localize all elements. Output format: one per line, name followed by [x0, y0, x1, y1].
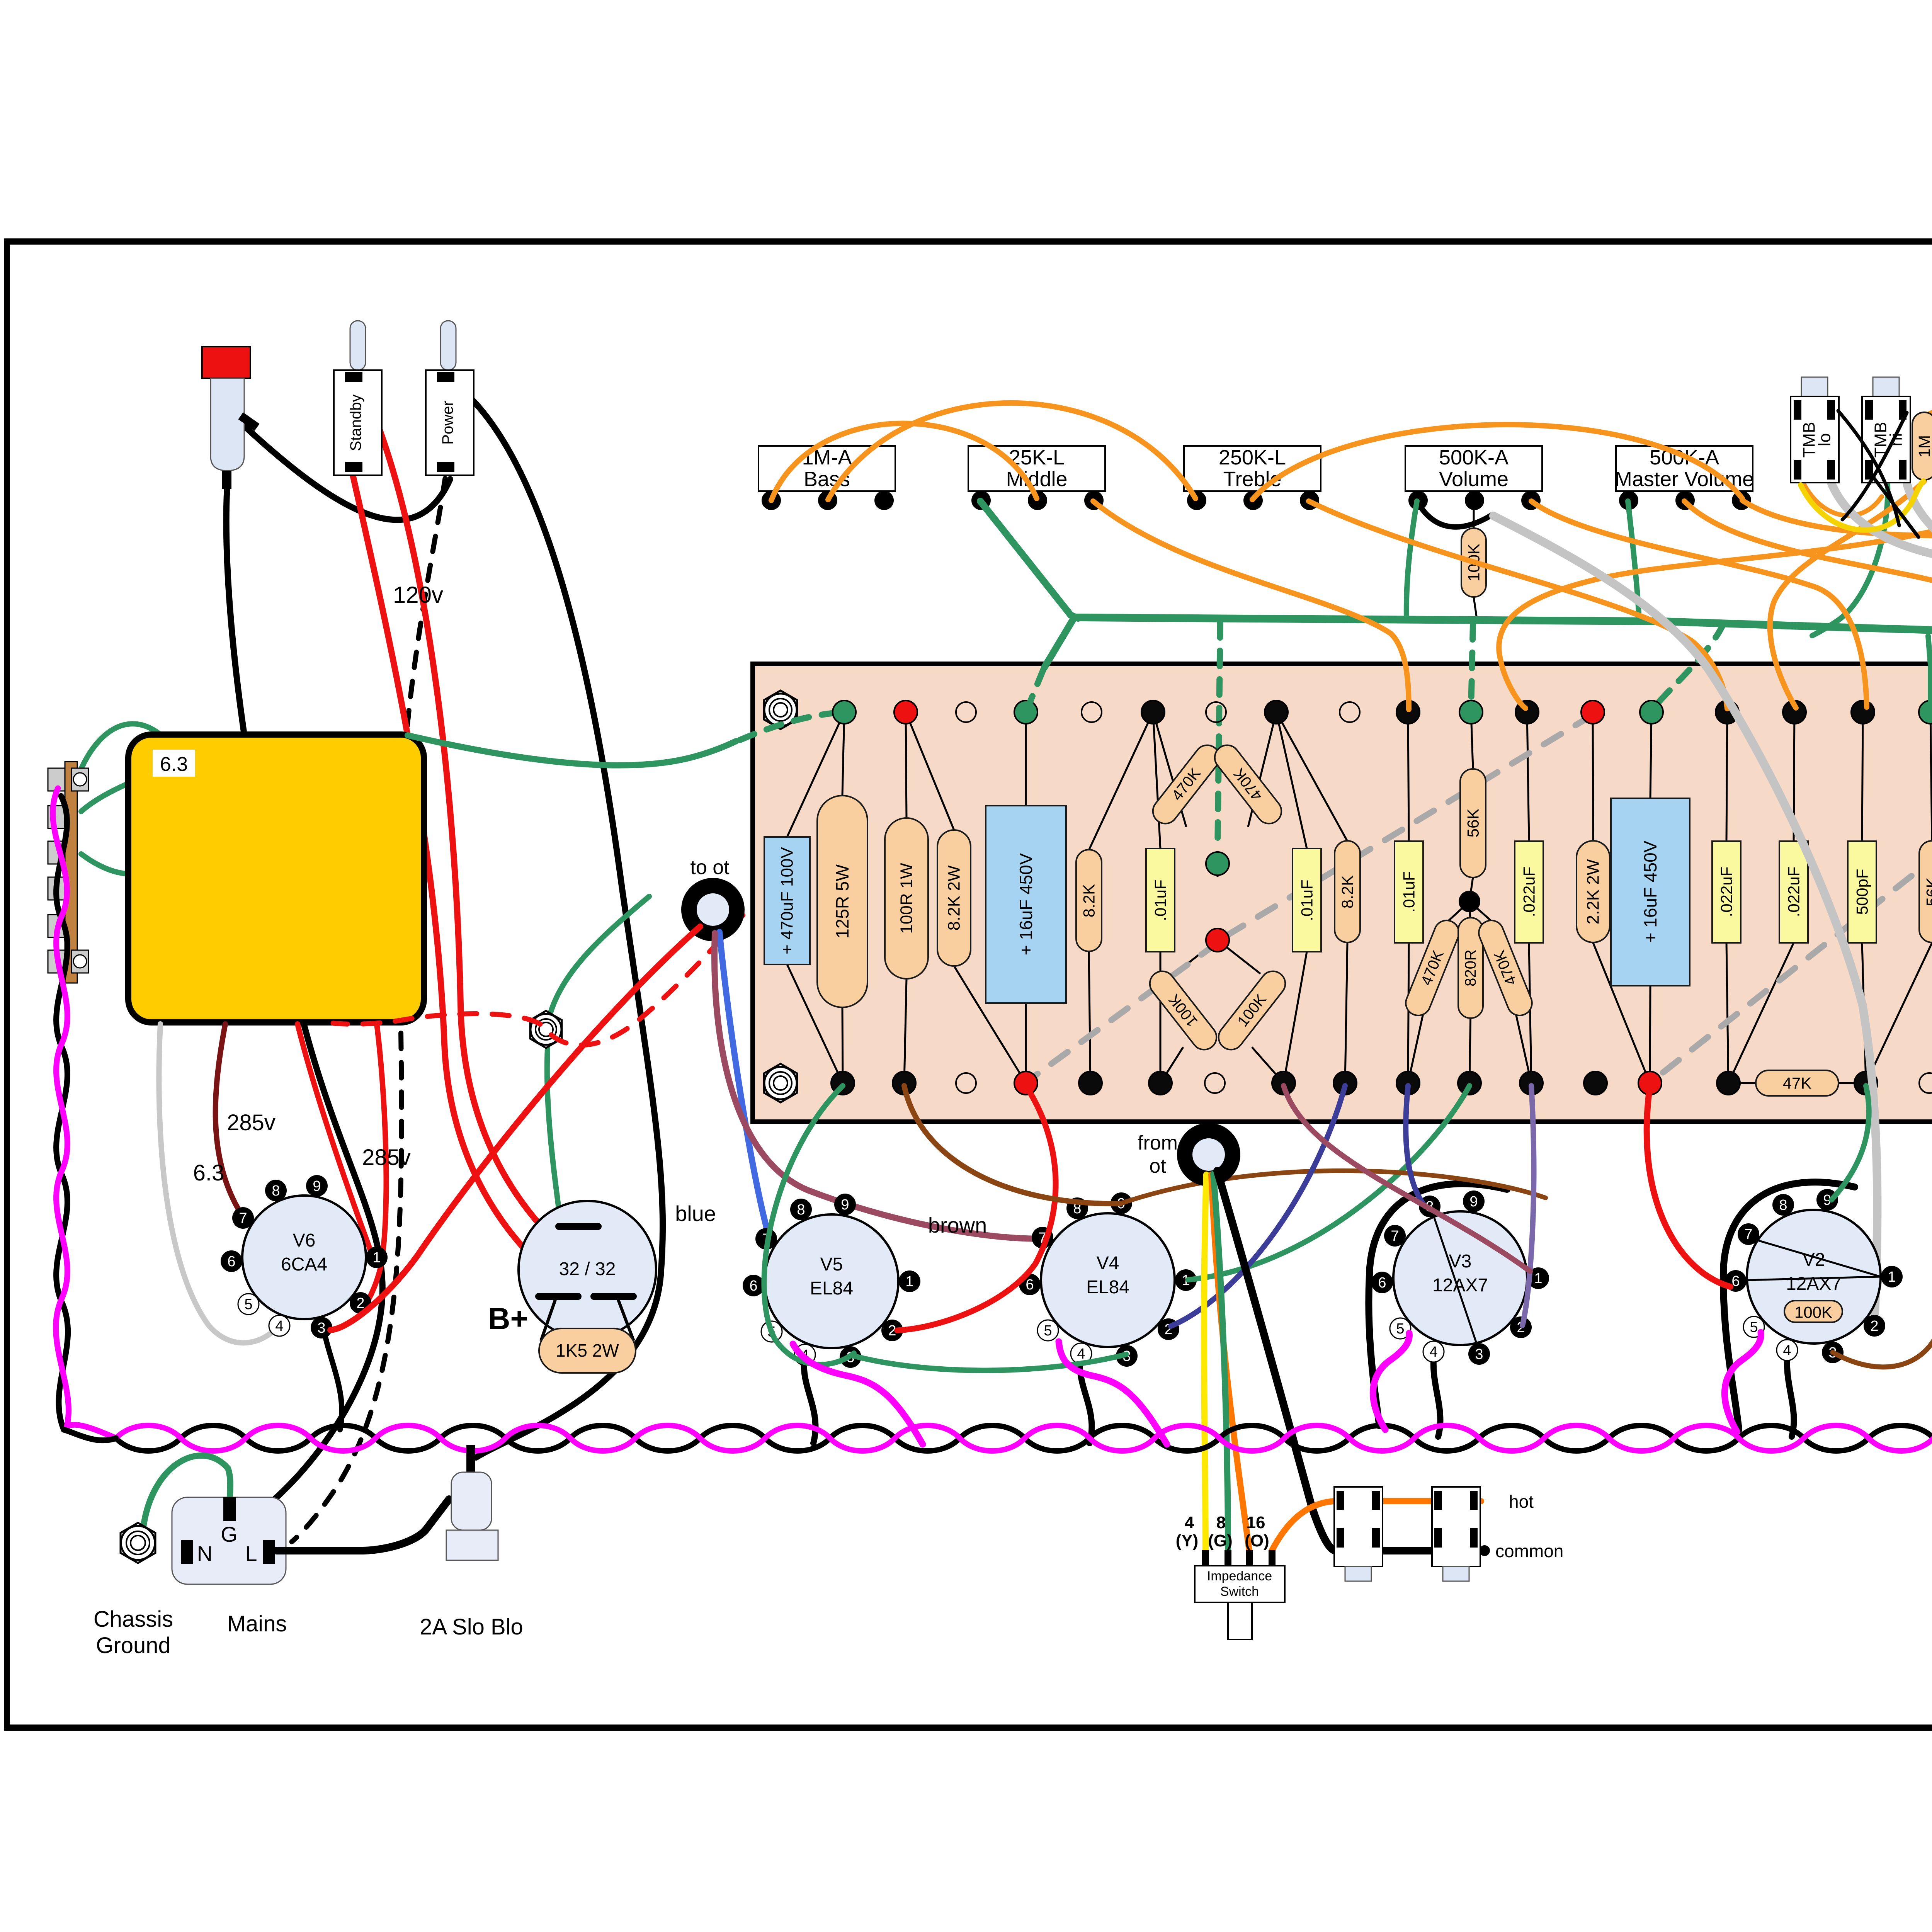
- svg-text:7: 7: [1744, 1226, 1752, 1243]
- svg-text:V4: V4: [1097, 1253, 1119, 1274]
- svg-text:47K: 47K: [1783, 1074, 1812, 1092]
- svg-text:56K: 56K: [1923, 878, 1932, 906]
- svg-text:V2: V2: [1803, 1250, 1825, 1270]
- svg-text:125R 5W: 125R 5W: [832, 864, 852, 939]
- svg-text:Impedance: Impedance: [1207, 1569, 1272, 1583]
- svg-text:Ground: Ground: [96, 1633, 170, 1658]
- svg-text:8.2K: 8.2K: [1338, 875, 1357, 908]
- svg-text:+ 470uF 100V: + 470uF 100V: [778, 847, 797, 954]
- svg-text:EL84: EL84: [810, 1278, 853, 1299]
- svg-text:hot: hot: [1509, 1492, 1534, 1512]
- svg-text:9: 9: [841, 1197, 849, 1213]
- svg-text:Mains: Mains: [227, 1611, 287, 1636]
- svg-text:8: 8: [1779, 1197, 1787, 1213]
- svg-text:blue: blue: [675, 1201, 716, 1226]
- svg-text:3: 3: [1475, 1346, 1483, 1362]
- svg-text:56K: 56K: [1464, 809, 1482, 838]
- svg-text:V3: V3: [1449, 1251, 1472, 1272]
- svg-text:100K: 100K: [1794, 1303, 1832, 1321]
- svg-text:8.2K: 8.2K: [1080, 884, 1098, 917]
- svg-text:820R: 820R: [1462, 949, 1479, 986]
- svg-text:EL84: EL84: [1086, 1277, 1129, 1298]
- svg-text:L: L: [245, 1541, 257, 1566]
- svg-text:Power: Power: [439, 401, 456, 444]
- svg-text:6.3: 6.3: [160, 753, 188, 776]
- svg-text:1K5 2W: 1K5 2W: [556, 1340, 619, 1361]
- svg-text:8: 8: [797, 1202, 805, 1218]
- svg-text:N: N: [197, 1541, 213, 1566]
- svg-text:(Y): (Y): [1176, 1531, 1199, 1550]
- svg-text:285v: 285v: [362, 1145, 411, 1170]
- svg-text:6: 6: [749, 1278, 757, 1294]
- svg-text:12AX7: 12AX7: [1786, 1274, 1842, 1294]
- svg-text:.01uF: .01uF: [1298, 879, 1316, 921]
- svg-text:8: 8: [1216, 1513, 1226, 1532]
- svg-text:common: common: [1495, 1541, 1563, 1561]
- svg-text:3: 3: [317, 1320, 325, 1336]
- svg-text:16: 16: [1247, 1513, 1265, 1532]
- svg-text:1: 1: [905, 1274, 913, 1290]
- svg-text:.01uF: .01uF: [1151, 879, 1170, 921]
- svg-text:lo: lo: [1815, 433, 1834, 446]
- svg-text:500K-A: 500K-A: [1439, 446, 1509, 469]
- svg-text:G: G: [221, 1522, 238, 1546]
- svg-text:4: 4: [275, 1318, 283, 1334]
- svg-text:6: 6: [227, 1253, 235, 1270]
- svg-text:2: 2: [1870, 1318, 1878, 1334]
- svg-text:+ 16uF 450V: + 16uF 450V: [1640, 840, 1660, 943]
- svg-text:7: 7: [1391, 1228, 1399, 1244]
- svg-text:6: 6: [1378, 1275, 1386, 1291]
- svg-text:4: 4: [1077, 1346, 1085, 1362]
- svg-text:.01uF: .01uF: [1400, 871, 1418, 912]
- svg-text:1: 1: [1534, 1270, 1542, 1287]
- svg-text:ot: ot: [1149, 1155, 1166, 1177]
- svg-text:V5: V5: [820, 1254, 843, 1275]
- svg-text:from: from: [1138, 1132, 1178, 1154]
- svg-text:(O): (O): [1245, 1531, 1269, 1550]
- svg-text:2.2K 2W: 2.2K 2W: [1584, 859, 1603, 924]
- svg-text:6: 6: [1026, 1277, 1034, 1293]
- svg-text:Standby: Standby: [347, 395, 364, 451]
- svg-text:100R 1W: 100R 1W: [897, 863, 916, 934]
- svg-text:250K-L: 250K-L: [1219, 446, 1286, 469]
- svg-text:+ 16uF 450V: + 16uF 450V: [1016, 853, 1036, 955]
- svg-text:.022uF: .022uF: [1785, 867, 1803, 917]
- svg-text:4: 4: [1783, 1342, 1791, 1359]
- svg-text:5: 5: [1750, 1319, 1758, 1335]
- svg-text:5: 5: [244, 1296, 252, 1313]
- svg-text:2A Slo Blo: 2A Slo Blo: [420, 1614, 523, 1639]
- svg-text:brown: brown: [928, 1213, 987, 1237]
- svg-text:.022uF: .022uF: [1520, 867, 1538, 917]
- svg-text:120v: 120v: [393, 582, 443, 608]
- svg-text:V6: V6: [293, 1230, 316, 1251]
- svg-text:12AX7: 12AX7: [1432, 1275, 1488, 1296]
- svg-text:B+: B+: [488, 1301, 529, 1336]
- svg-text:4: 4: [1429, 1344, 1437, 1360]
- svg-text:Switch: Switch: [1220, 1584, 1259, 1599]
- svg-text:6.3: 6.3: [193, 1160, 224, 1185]
- svg-text:(G): (G): [1208, 1531, 1233, 1550]
- svg-text:7: 7: [239, 1210, 247, 1226]
- svg-text:8.2K 2W: 8.2K 2W: [945, 865, 964, 930]
- svg-text:Chassis: Chassis: [94, 1607, 173, 1632]
- svg-text:Middle: Middle: [1006, 468, 1067, 491]
- svg-text:4: 4: [1185, 1513, 1194, 1532]
- svg-text:285v: 285v: [227, 1110, 276, 1135]
- svg-text:32 / 32: 32 / 32: [559, 1259, 616, 1279]
- svg-text:5: 5: [1396, 1321, 1404, 1337]
- svg-text:to ot: to ot: [690, 856, 730, 879]
- svg-text:.022uF: .022uF: [1718, 867, 1736, 917]
- svg-text:8: 8: [272, 1183, 280, 1199]
- svg-text:1: 1: [1888, 1269, 1896, 1285]
- svg-text:Volume: Volume: [1439, 468, 1509, 491]
- svg-text:1M: 1M: [1915, 435, 1932, 457]
- svg-text:5: 5: [1044, 1323, 1052, 1339]
- svg-text:9: 9: [1469, 1194, 1478, 1210]
- svg-text:1: 1: [372, 1250, 381, 1266]
- svg-text:9: 9: [313, 1178, 321, 1194]
- svg-text:6CA4: 6CA4: [281, 1254, 327, 1275]
- svg-text:500pF: 500pF: [1853, 869, 1871, 915]
